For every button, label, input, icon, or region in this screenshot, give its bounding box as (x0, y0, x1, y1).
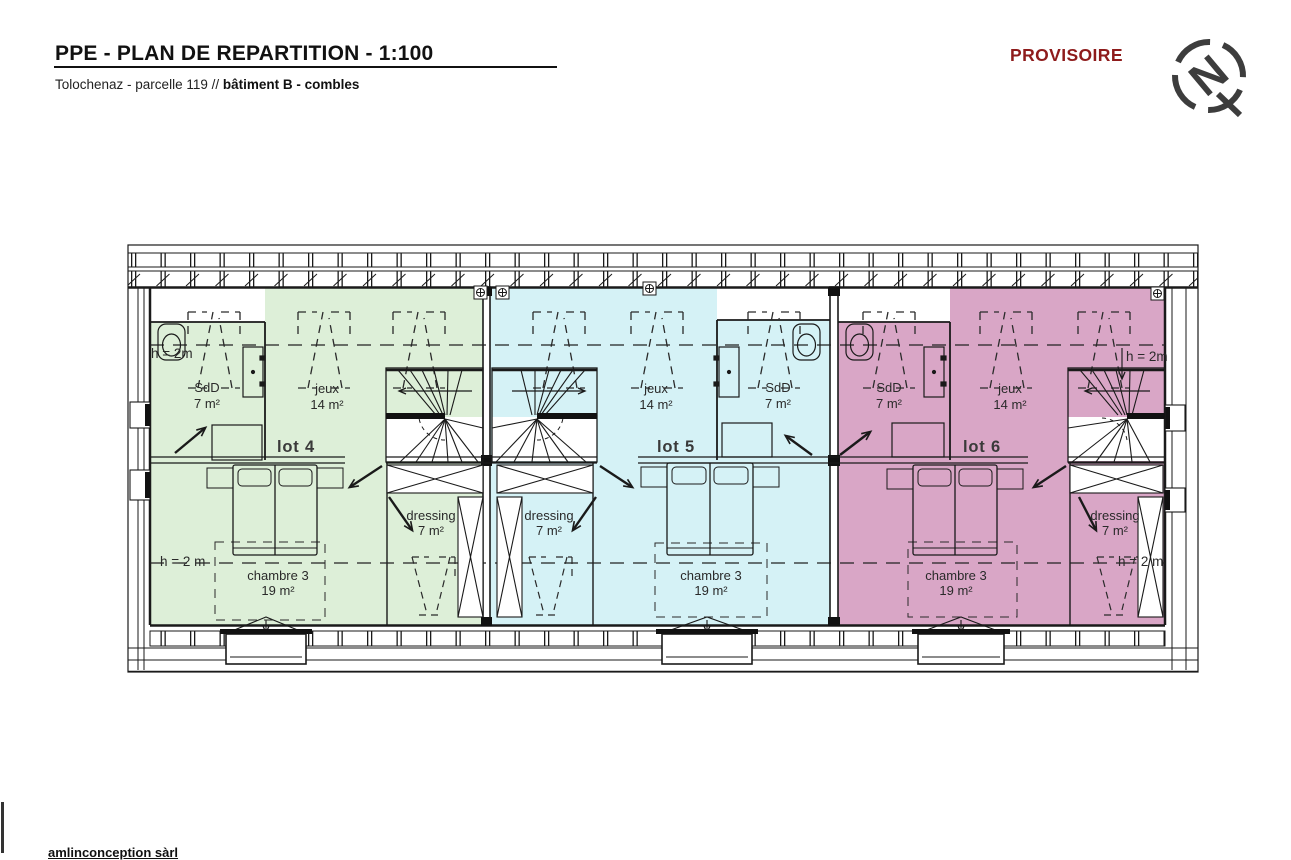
room-area: 7 m² (194, 396, 221, 411)
height-note: h = 2m (1126, 349, 1168, 364)
room-name: dressing (406, 508, 455, 523)
room-area: 14 m² (993, 397, 1027, 412)
lot-label: lot 4 (277, 438, 315, 456)
room-name: jeux (997, 381, 1022, 396)
room-area: 19 m² (694, 583, 728, 598)
room-area: 7 m² (765, 396, 792, 411)
height-note: h = 2 m (1118, 554, 1163, 569)
lot-label: lot 6 (963, 438, 1001, 456)
room-area: 19 m² (939, 583, 973, 598)
room-name: jeux (643, 381, 668, 396)
lot-label: lot 5 (657, 438, 695, 456)
room-area: 19 m² (261, 583, 295, 598)
room-area: 14 m² (310, 397, 344, 412)
room-name: chambre 3 (247, 568, 308, 583)
room-area: 14 m² (639, 397, 673, 412)
room-name: SdD (876, 380, 901, 395)
plus-circle-icon (496, 286, 509, 299)
room-name: jeux (314, 381, 339, 396)
room-name: SdD (194, 380, 219, 395)
room-name: SdD (765, 380, 790, 395)
plus-circle-icon (643, 282, 656, 295)
room-area: 7 m² (1102, 523, 1129, 538)
page: { "header": { "title": "PPE - PLAN DE RE… (0, 0, 1291, 853)
room-area: 7 m² (418, 523, 445, 538)
floor-plan: h = 2m SdD 7 m² jeux 14 m² lot 4 h = 2 m… (0, 0, 1291, 853)
page-edge-mark (1, 802, 4, 853)
room-name: chambre 3 (680, 568, 741, 583)
height-note: h = 2m (151, 346, 193, 361)
room-name: dressing (524, 508, 573, 523)
room-area: 7 m² (876, 396, 903, 411)
room-name: chambre 3 (925, 568, 986, 583)
room-area: 7 m² (536, 523, 563, 538)
plus-circle-icon (474, 286, 487, 299)
room-name: dressing (1090, 508, 1139, 523)
height-note: h = 2 m (160, 554, 205, 569)
plus-circle-icon (1151, 287, 1164, 300)
